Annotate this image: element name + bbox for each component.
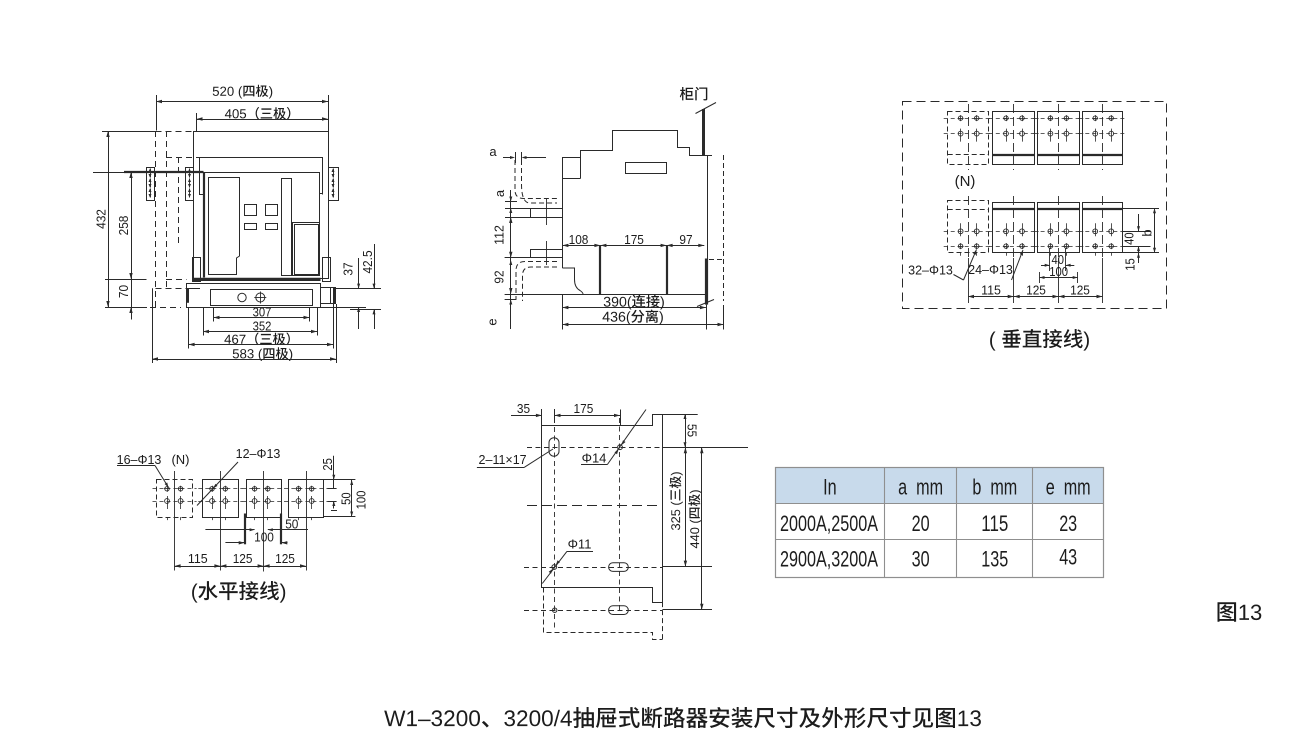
svg-text:a: a <box>492 189 507 197</box>
svg-text:97: 97 <box>679 232 692 247</box>
svg-text:125: 125 <box>1070 283 1090 298</box>
svg-text:2–11×17: 2–11×17 <box>479 453 527 467</box>
svg-text:43: 43 <box>1059 545 1077 570</box>
svg-text:175: 175 <box>624 232 644 247</box>
svg-text:(N): (N) <box>955 173 976 190</box>
svg-text:115: 115 <box>981 283 1001 298</box>
svg-text:35: 35 <box>517 401 530 416</box>
svg-text:16–Φ13: 16–Φ13 <box>117 453 162 467</box>
svg-text:15: 15 <box>1123 258 1137 271</box>
svg-text:258: 258 <box>116 216 131 236</box>
svg-text:112: 112 <box>491 225 506 245</box>
svg-text:37: 37 <box>341 262 356 275</box>
svg-text:40: 40 <box>1122 232 1136 245</box>
svg-text:23: 23 <box>1059 511 1077 536</box>
svg-text:92: 92 <box>492 270 507 283</box>
svg-text:20: 20 <box>912 511 930 536</box>
svg-text:55: 55 <box>684 424 699 437</box>
svg-text:135: 135 <box>981 546 1008 571</box>
svg-text:2900A,3200A: 2900A,3200A <box>780 546 878 571</box>
svg-text:a: a <box>489 144 497 159</box>
svg-text:125: 125 <box>275 551 295 566</box>
svg-text:115: 115 <box>981 511 1008 536</box>
svg-text:a mm: a mm <box>898 475 943 500</box>
svg-text:25: 25 <box>321 458 335 471</box>
svg-text:70: 70 <box>116 285 131 298</box>
svg-text:b: b <box>1140 229 1155 236</box>
svg-text:50: 50 <box>339 492 353 505</box>
svg-text:108: 108 <box>569 232 589 247</box>
svg-text:Φ14: Φ14 <box>582 451 607 466</box>
svg-text:24–Φ13: 24–Φ13 <box>968 263 1013 277</box>
svg-text:432: 432 <box>93 209 108 229</box>
svg-text:32–Φ13: 32–Φ13 <box>908 263 953 277</box>
svg-text:2000A,2500A: 2000A,2500A <box>780 511 878 536</box>
svg-text:In: In <box>823 475 837 500</box>
svg-text:100: 100 <box>254 530 274 545</box>
svg-text:100: 100 <box>354 491 368 510</box>
svg-text:115: 115 <box>188 551 208 566</box>
svg-text:12–Φ13: 12–Φ13 <box>236 447 281 461</box>
svg-text:(N): (N) <box>171 452 189 467</box>
svg-text:42.5: 42.5 <box>360 250 375 273</box>
svg-text:175: 175 <box>574 401 594 416</box>
svg-text:Φ11: Φ11 <box>568 537 592 552</box>
svg-text:b mm: b mm <box>972 475 1017 500</box>
svg-text:e: e <box>485 318 500 325</box>
svg-text:e mm: e mm <box>1046 475 1091 500</box>
svg-text:125: 125 <box>1026 283 1046 298</box>
svg-text:30: 30 <box>912 546 930 571</box>
svg-text:125: 125 <box>233 551 253 566</box>
